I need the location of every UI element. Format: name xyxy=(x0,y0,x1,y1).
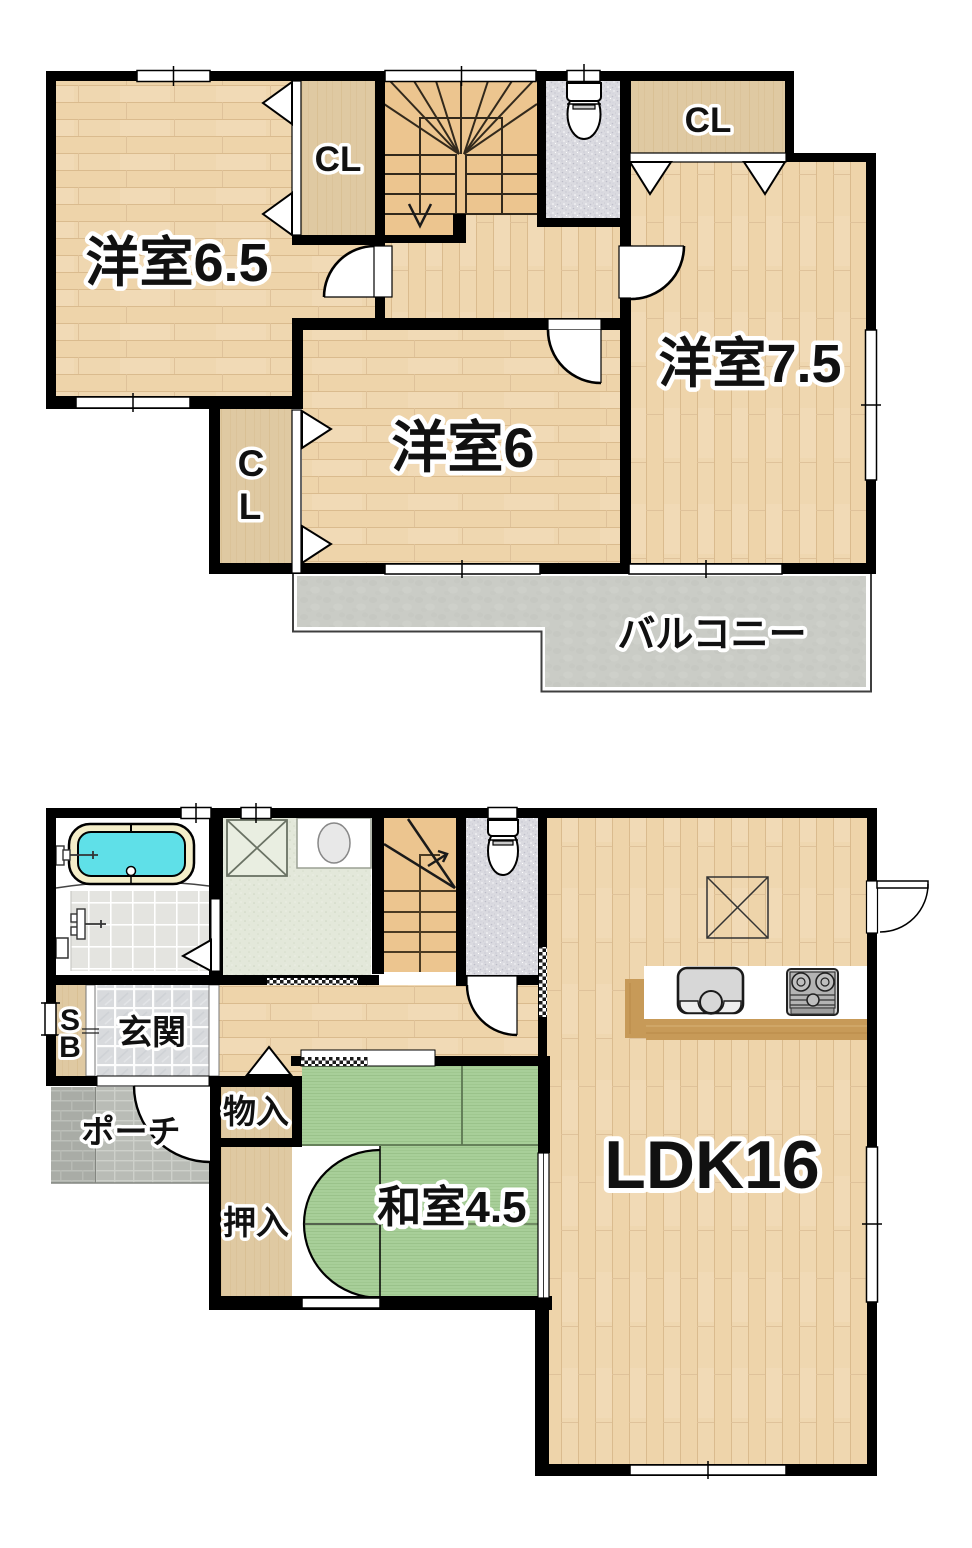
svg-text:CL: CL xyxy=(685,101,732,140)
svg-text:押入: 押入 xyxy=(223,1204,289,1241)
svg-text:LDK16: LDK16 xyxy=(604,1127,819,1203)
svg-text:和室4.5: 和室4.5 xyxy=(377,1182,526,1232)
svg-text:物入: 物入 xyxy=(223,1093,289,1130)
svg-text:L: L xyxy=(239,486,262,527)
svg-text:B: B xyxy=(59,1031,81,1064)
svg-text:バルコニー: バルコニー xyxy=(617,614,806,656)
svg-text:洋室6.5: 洋室6.5 xyxy=(85,233,268,293)
svg-text:洋室6: 洋室6 xyxy=(391,416,534,479)
svg-text:ポーチ: ポーチ xyxy=(82,1113,181,1150)
svg-text:CL: CL xyxy=(315,140,362,179)
svg-text:玄関: 玄関 xyxy=(118,1014,186,1052)
svg-text:洋室7.5: 洋室7.5 xyxy=(658,334,841,394)
svg-text:C: C xyxy=(238,443,265,484)
